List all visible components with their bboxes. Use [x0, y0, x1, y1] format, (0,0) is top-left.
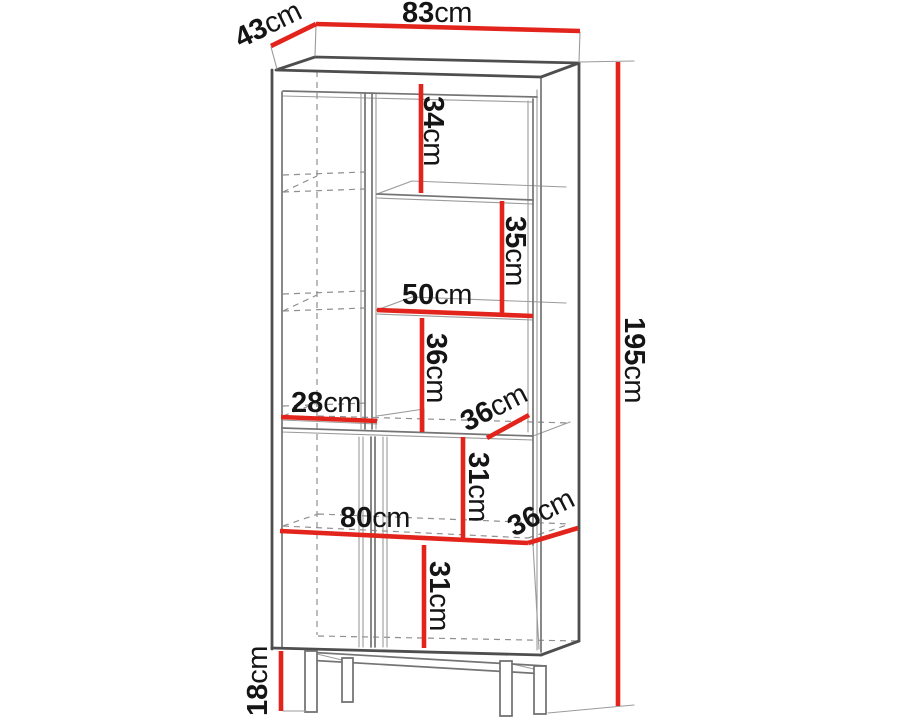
ext-top-back-left: [315, 25, 316, 56]
dim-label-28: 28cm: [291, 387, 361, 419]
cabinet-dimension-diagram: 43cm 83cm 195cm 34cm 35cm 50cm 36cm 28cm…: [0, 0, 900, 720]
diagram-canvas: 43cm 83cm 195cm 34cm 35cm 50cm 36cm 28cm…: [0, 0, 900, 720]
divider-outer-lines: [361, 93, 376, 429]
dim-label-31-upper: 31cm: [462, 452, 494, 522]
middle-shelf-lines: [282, 422, 570, 440]
door-gap-lines: [371, 437, 375, 647]
dimension-labels: 43cm 83cm 195cm 34cm 35cm 50cm 36cm 28cm…: [230, 0, 650, 716]
dim-label-31-lower: 31cm: [423, 561, 455, 631]
bottom-right-edge: [541, 641, 579, 655]
back-bottom-edge: [318, 636, 579, 641]
dim-label-50: 50cm: [402, 279, 472, 311]
medium-edges: [282, 77, 546, 674]
dim-label-36-upper: 36cm: [420, 333, 452, 403]
niche-step: [377, 409, 424, 431]
top-panel-underside: [283, 91, 537, 97]
dim-label-195: 195cm: [618, 317, 650, 403]
left-shelf-2: [283, 291, 364, 311]
right-shelf-a: [377, 181, 566, 204]
front-left-leg: [305, 651, 317, 712]
dim-label-83: 83cm: [402, 0, 472, 29]
front-right-leg: [534, 666, 546, 714]
ext-top-back-right: [579, 32, 580, 62]
ext-top-left: [271, 47, 277, 69]
top-panel-inner-line: [283, 96, 533, 102]
door-slat-lines: [359, 437, 387, 647]
lower-right-inner-edge: [533, 545, 539, 649]
top-face: [276, 57, 579, 77]
dim-label-80: 80cm: [340, 502, 410, 534]
left-shelf-1: [283, 172, 364, 192]
divider-lines: [365, 93, 372, 429]
dim-label-35: 35cm: [499, 216, 531, 286]
dim-label-34: 34cm: [417, 96, 449, 166]
base-legs: [305, 651, 546, 716]
back-left-leg: [342, 658, 353, 702]
dim-label-43: 43cm: [230, 0, 307, 55]
ext-height-top: [579, 61, 634, 62]
dim-label-18: 18cm: [242, 646, 274, 716]
back-right-leg: [500, 661, 512, 716]
ext-height-bottom: [548, 705, 634, 713]
dim-label-36-middle: 36cm: [455, 378, 532, 438]
